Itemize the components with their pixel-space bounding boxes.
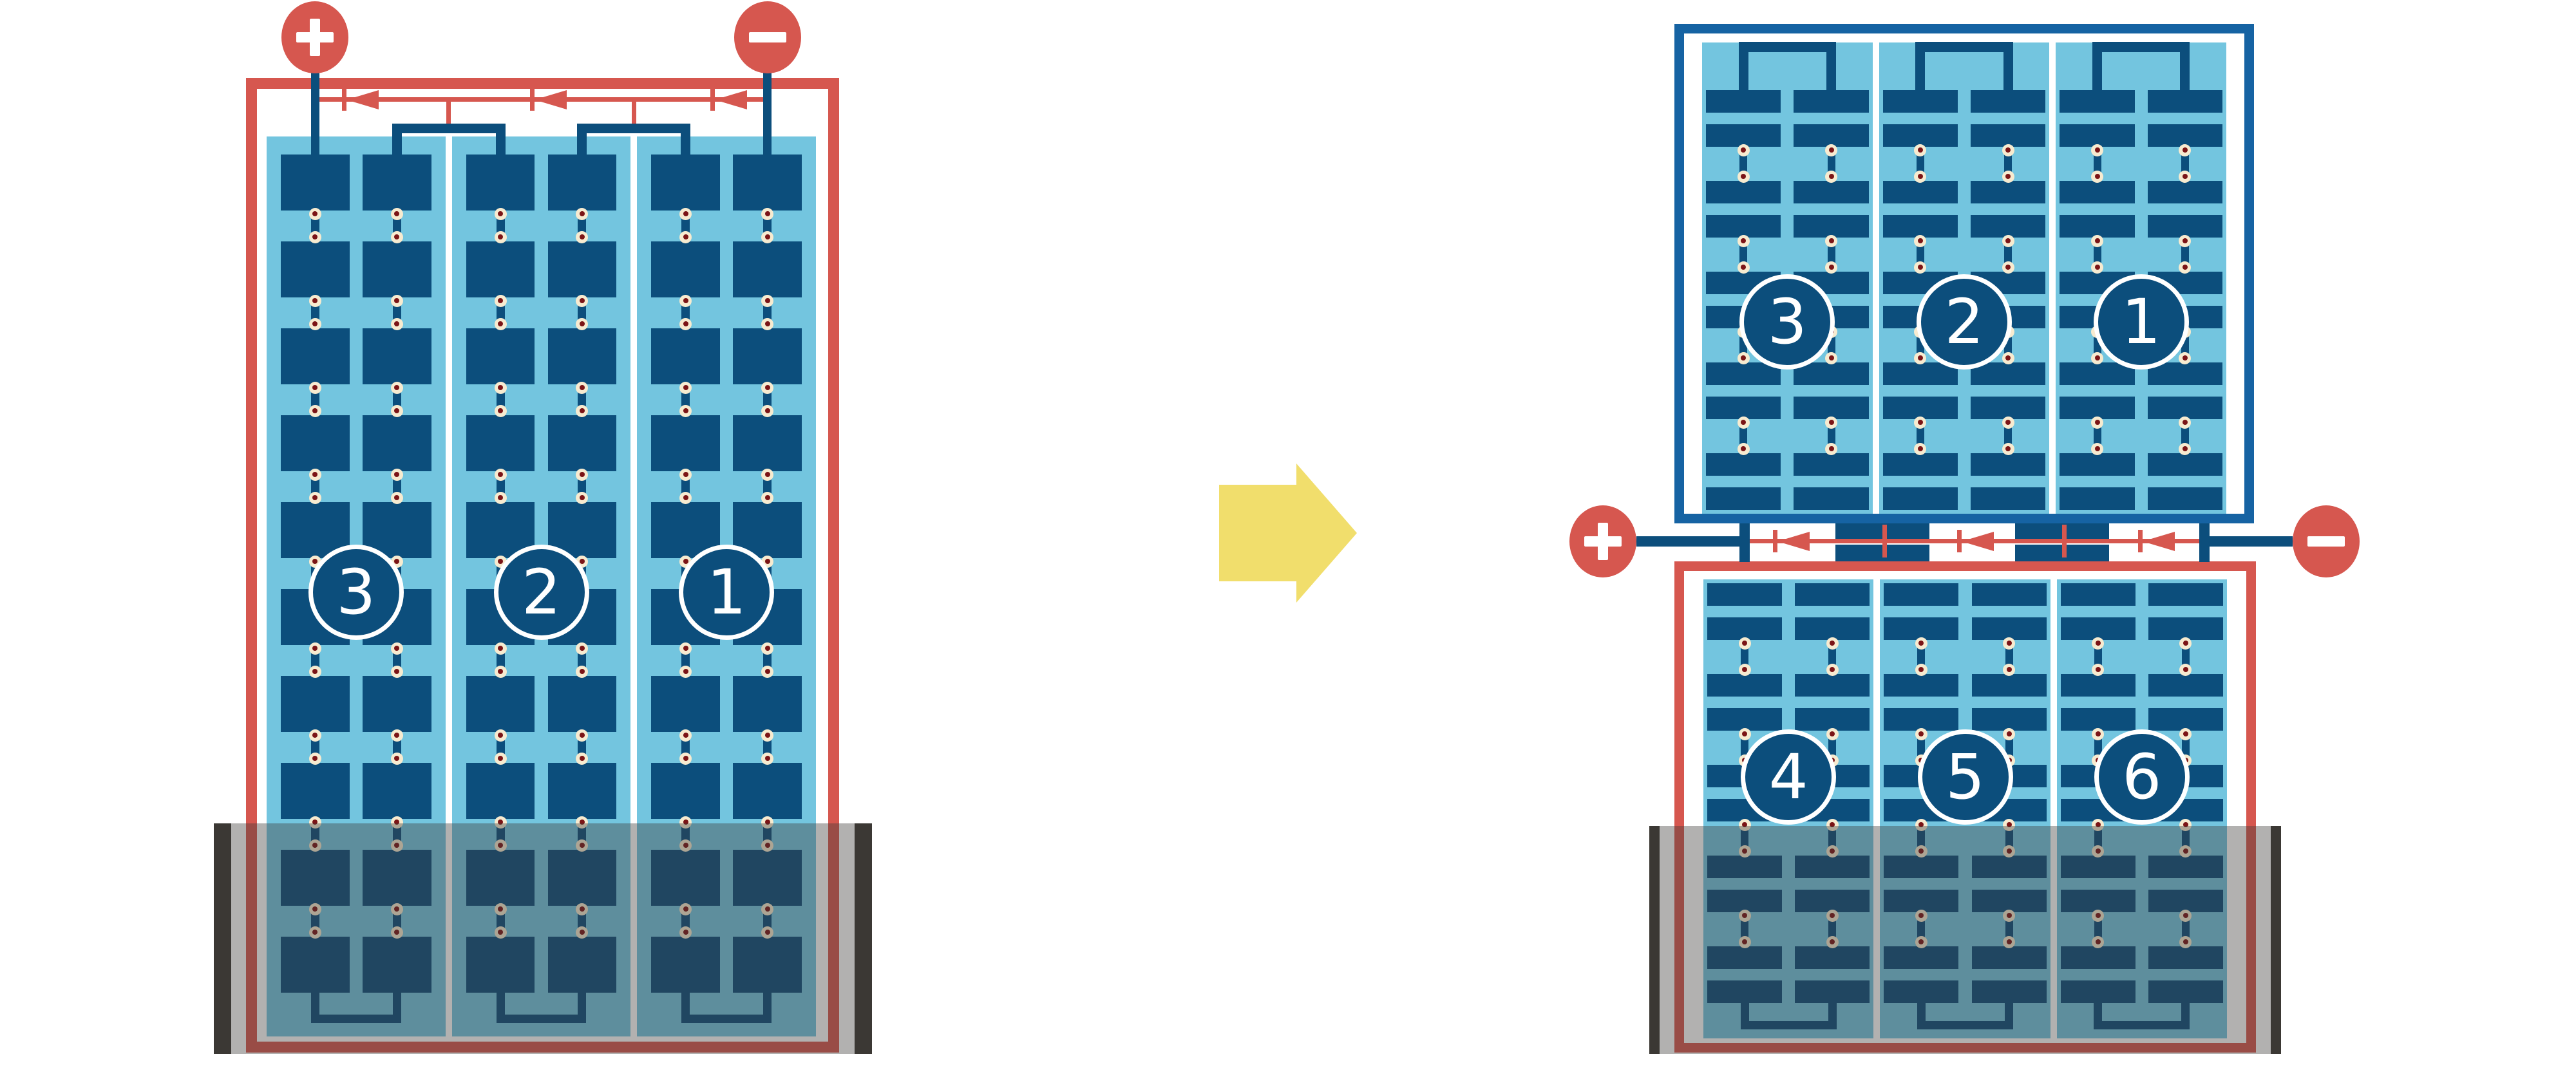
- solder-dot-core: [2007, 641, 2012, 646]
- solder-dot-core: [2005, 446, 2011, 451]
- solder-dot-core: [394, 408, 399, 413]
- solar-cell: [1972, 708, 2047, 731]
- terminal-stem: [1636, 536, 1741, 547]
- solder-dot: [2002, 261, 2014, 274]
- solder-dot: [576, 642, 588, 655]
- solder-dot-core: [312, 646, 317, 651]
- minus-icon: [2307, 536, 2345, 547]
- arrow-right-icon-head: [1296, 464, 1357, 603]
- solder-dot: [761, 318, 773, 330]
- solder-dot-core: [765, 298, 770, 303]
- solar-cell: [1884, 674, 1958, 697]
- solar-cell: [1794, 90, 1868, 113]
- solder-dot: [2091, 443, 2103, 455]
- solder-dot-core: [2095, 355, 2100, 361]
- solar-cell: [1971, 181, 2045, 203]
- solder-dot-core: [394, 234, 399, 239]
- solar-cell: [548, 328, 617, 384]
- solder-dot: [391, 753, 403, 765]
- solder-dot-core: [312, 321, 317, 326]
- solder-dot: [495, 318, 507, 330]
- solder-dot: [495, 642, 507, 655]
- solar-cell: [1706, 90, 1781, 113]
- solar-cell: [2148, 181, 2222, 203]
- solar-cell: [1706, 124, 1781, 147]
- solder-dot: [2092, 728, 2104, 740]
- solar-cell: [651, 676, 720, 732]
- string-u-connector-leg: [1826, 52, 1836, 90]
- solder-dot: [761, 642, 773, 655]
- solar-cell: [2148, 90, 2222, 113]
- string-link-bridge-bar: [577, 124, 690, 133]
- solder-dot-core: [2096, 641, 2101, 646]
- solder-dot-core: [765, 321, 770, 326]
- solder-dot-core: [683, 733, 688, 738]
- solder-dot-core: [2095, 420, 2100, 425]
- string-u-connector-leg: [2092, 52, 2102, 90]
- solar-cell: [2148, 124, 2222, 147]
- solder-dot-core: [498, 298, 503, 303]
- solar-cell: [1794, 215, 1868, 238]
- solder-dot: [679, 666, 692, 678]
- solder-dot-core: [312, 385, 317, 390]
- solar-cell: [363, 241, 431, 297]
- solar-cell: [2148, 453, 2222, 476]
- solder-dot: [1915, 664, 1927, 676]
- string-link-bridge-bar: [392, 124, 506, 133]
- solder-dot: [2179, 637, 2192, 650]
- bypass-diode-cathode-bar: [530, 88, 535, 111]
- solder-dot: [1914, 443, 1926, 455]
- solder-dot-core: [683, 211, 688, 216]
- solar-cell: [363, 155, 431, 211]
- shade-edge-bar: [214, 823, 231, 1054]
- solder-dot: [495, 382, 507, 394]
- string-u-connector-leg: [2003, 52, 2013, 90]
- solder-dot-core: [1829, 238, 1834, 243]
- solar-cell: [1795, 583, 1870, 606]
- solar-cell: [1883, 215, 1958, 238]
- solder-dot-core: [1918, 355, 1923, 361]
- solder-dot: [2091, 417, 2103, 429]
- solder-dot: [1738, 261, 1750, 274]
- solder-dot-core: [2096, 731, 2101, 736]
- solder-dot-core: [394, 756, 399, 761]
- solder-dot-core: [498, 321, 503, 326]
- solder-dot: [495, 231, 507, 243]
- solder-dot-core: [1742, 667, 1747, 672]
- solder-dot: [1738, 171, 1750, 183]
- solder-dot-core: [2183, 731, 2188, 736]
- solder-dot-core: [394, 472, 399, 477]
- string-marker: 1: [679, 545, 774, 640]
- solar-cell: [2148, 617, 2223, 640]
- solder-dot-core: [312, 298, 317, 303]
- solder-dot-core: [394, 298, 399, 303]
- solder-dot: [679, 753, 692, 765]
- solder-dot-core: [2005, 147, 2011, 153]
- solar-cell: [466, 155, 535, 211]
- minus-terminal: [2293, 505, 2360, 577]
- solder-dot-core: [1741, 420, 1746, 425]
- solder-dot-core: [498, 559, 503, 564]
- solder-dot-core: [580, 495, 585, 500]
- solder-dot-core: [683, 298, 688, 303]
- solar-cell: [2060, 124, 2134, 147]
- solder-dot: [2179, 728, 2192, 740]
- bypass-diode-cathode-bar: [1773, 530, 1777, 552]
- solder-dot-core: [1918, 265, 1923, 270]
- solder-dot-core: [683, 756, 688, 761]
- solder-dot-core: [1918, 420, 1923, 425]
- solder-dot-core: [312, 211, 317, 216]
- solder-dot-core: [765, 646, 770, 651]
- solder-dot-core: [1741, 147, 1746, 153]
- solar-cell: [1883, 181, 1958, 203]
- string-u-connector-leg: [1915, 52, 1925, 90]
- solder-dot-core: [2005, 265, 2011, 270]
- solar-cell: [1795, 708, 1870, 731]
- solder-dot: [495, 729, 507, 742]
- solder-dot: [679, 405, 692, 417]
- solar-cell: [651, 241, 720, 297]
- string-marker: 2: [494, 545, 589, 640]
- solar-cell: [1884, 583, 1958, 606]
- solder-dot: [1738, 235, 1750, 247]
- solar-cell: [548, 676, 617, 732]
- solar-cell: [651, 763, 720, 819]
- solder-dot-core: [312, 408, 317, 413]
- solder-dot-core: [1918, 731, 1924, 736]
- string-marker: 2: [1917, 274, 2012, 370]
- solar-cell: [1883, 124, 1958, 147]
- solder-dot-core: [683, 669, 688, 674]
- solder-dot-core: [683, 495, 688, 500]
- solder-dot-core: [1830, 731, 1835, 736]
- solder-dot: [2003, 728, 2015, 740]
- solder-dot-core: [2007, 731, 2012, 736]
- solder-dot-core: [765, 472, 770, 477]
- solder-dot: [2179, 443, 2191, 455]
- solar-cell: [1706, 397, 1781, 419]
- solder-dot-core: [765, 211, 770, 216]
- solar-cell: [281, 763, 350, 819]
- solder-dot-core: [312, 733, 317, 738]
- bypass-diode-icon: [715, 90, 747, 109]
- solder-dot: [576, 318, 588, 330]
- solder-dot-core: [498, 669, 503, 674]
- solder-dot-core: [765, 234, 770, 239]
- solder-dot-core: [683, 321, 688, 326]
- solder-dot: [2091, 144, 2103, 156]
- solder-dot-core: [2005, 420, 2011, 425]
- solder-dot-core: [394, 646, 399, 651]
- solar-cell: [1971, 215, 2045, 238]
- solar-cell: [2060, 397, 2134, 419]
- solder-dot: [576, 753, 588, 765]
- solder-dot-core: [394, 495, 399, 500]
- solder-dot-core: [580, 321, 585, 326]
- solder-dot-core: [2095, 238, 2100, 243]
- solder-dot-core: [2183, 238, 2188, 243]
- solar-cell: [733, 155, 802, 211]
- bypass-diode-cathode-bar: [2138, 530, 2143, 552]
- solder-dot: [1826, 637, 1839, 650]
- solar-shading-diagram: 321321456: [0, 0, 2576, 1068]
- solder-dot-core: [765, 669, 770, 674]
- solar-cell: [466, 763, 535, 819]
- solder-dot-core: [498, 234, 503, 239]
- solar-cell: [733, 415, 802, 471]
- solder-dot: [1914, 261, 1926, 274]
- solder-dot: [1825, 352, 1837, 364]
- solar-cell: [548, 241, 617, 297]
- solar-cell: [651, 328, 720, 384]
- solder-dot: [576, 729, 588, 742]
- solar-cell: [1884, 617, 1958, 640]
- solder-dot: [391, 666, 403, 678]
- solar-cell: [733, 763, 802, 819]
- solder-dot-core: [580, 408, 585, 413]
- solder-dot-core: [394, 321, 399, 326]
- junction-bus: [1739, 523, 1750, 562]
- string-link-bridge-leg: [496, 133, 506, 155]
- solder-dot: [1825, 144, 1837, 156]
- solder-dot: [761, 492, 773, 504]
- solder-dot-core: [312, 559, 317, 564]
- solder-dot-core: [1829, 147, 1834, 153]
- solder-dot: [309, 208, 321, 220]
- solar-cell: [1707, 674, 1782, 697]
- solder-dot-core: [2183, 147, 2188, 153]
- solder-dot: [2179, 144, 2191, 156]
- solder-dot: [1738, 352, 1750, 364]
- solder-dot: [1739, 728, 1751, 740]
- solder-dot-core: [312, 669, 317, 674]
- solder-dot: [679, 295, 692, 307]
- solder-dot: [761, 469, 773, 481]
- solder-dot-core: [580, 733, 585, 738]
- solder-dot: [391, 729, 403, 742]
- solder-dot-core: [2005, 238, 2011, 243]
- plus-icon-vertical: [1598, 523, 1608, 560]
- solder-dot: [761, 208, 773, 220]
- solar-cell: [466, 676, 535, 732]
- solder-dot: [2092, 637, 2104, 650]
- solder-dot: [2179, 261, 2191, 274]
- solar-cell: [2061, 674, 2136, 697]
- solder-dot: [495, 753, 507, 765]
- solder-dot: [391, 405, 403, 417]
- string-link-bridge-leg: [392, 133, 402, 155]
- solder-dot-core: [312, 495, 317, 500]
- shade-overlay: [1649, 826, 2281, 1054]
- solder-dot-core: [312, 472, 317, 477]
- string-marker: 3: [308, 545, 404, 640]
- solar-cell: [281, 328, 350, 384]
- solar-cell: [1972, 674, 2047, 697]
- solder-dot: [679, 382, 692, 394]
- solder-dot: [2002, 235, 2014, 247]
- solar-cell: [1884, 708, 1958, 731]
- solder-dot: [309, 382, 321, 394]
- solder-dot-core: [765, 756, 770, 761]
- solder-dot: [679, 642, 692, 655]
- solder-dot: [761, 231, 773, 243]
- solder-dot-core: [765, 408, 770, 413]
- string-marker: 6: [2094, 729, 2190, 825]
- solder-dot-core: [1741, 446, 1746, 451]
- solder-dot-core: [2183, 667, 2188, 672]
- solder-dot-core: [765, 495, 770, 500]
- solder-dot: [309, 666, 321, 678]
- solder-dot-core: [498, 646, 503, 651]
- solder-dot: [679, 208, 692, 220]
- solder-dot-core: [2183, 420, 2188, 425]
- solder-dot-core: [394, 669, 399, 674]
- solar-cell: [1795, 674, 1870, 697]
- shade-edge-bar: [1649, 826, 1660, 1054]
- solder-dot-core: [580, 298, 585, 303]
- solder-dot: [2003, 637, 2015, 650]
- solar-cell: [1707, 708, 1782, 731]
- bypass-diode-icon: [2143, 532, 2175, 551]
- solder-dot: [2179, 171, 2191, 183]
- solder-dot-core: [394, 211, 399, 216]
- solar-cell: [466, 328, 535, 384]
- solder-dot-core: [1918, 641, 1924, 646]
- solder-dot-core: [683, 234, 688, 239]
- plus-terminal: [281, 1, 348, 73]
- solder-dot: [2002, 417, 2014, 429]
- solar-cell: [548, 155, 617, 211]
- minus-icon: [749, 32, 786, 42]
- solder-dot-core: [2183, 446, 2188, 451]
- solar-cell: [733, 328, 802, 384]
- solder-dot-core: [1918, 238, 1923, 243]
- solar-cell: [281, 676, 350, 732]
- solder-dot: [576, 208, 588, 220]
- bypass-diode-cathode-bar: [342, 88, 346, 111]
- solder-dot-core: [2095, 446, 2100, 451]
- solar-cell: [363, 676, 431, 732]
- solder-dot-core: [498, 495, 503, 500]
- solar-cell: [2061, 617, 2136, 640]
- solar-cell: [2148, 397, 2222, 419]
- solder-dot-core: [765, 559, 770, 564]
- solar-cell: [1706, 181, 1781, 203]
- solder-dot: [1914, 144, 1926, 156]
- solder-dot: [1825, 417, 1837, 429]
- solder-dot-core: [2183, 265, 2188, 270]
- solder-dot: [495, 208, 507, 220]
- string-marker: 4: [1741, 729, 1836, 825]
- solar-cell: [1971, 124, 2045, 147]
- solder-dot-core: [2005, 355, 2011, 361]
- solder-dot-core: [580, 472, 585, 477]
- solder-dot: [576, 469, 588, 481]
- solar-cell: [2060, 90, 2134, 113]
- solder-dot-core: [580, 559, 585, 564]
- solder-dot: [761, 295, 773, 307]
- solder-dot: [2179, 235, 2191, 247]
- solder-dot-core: [580, 234, 585, 239]
- solar-cell: [548, 415, 617, 471]
- solder-dot: [679, 729, 692, 742]
- solar-cell: [1971, 453, 2045, 476]
- solder-dot-core: [498, 408, 503, 413]
- solder-dot: [576, 382, 588, 394]
- arrow-right-icon-body: [1219, 485, 1296, 581]
- solder-dot-core: [2183, 174, 2188, 179]
- solder-dot: [761, 405, 773, 417]
- solder-dot: [761, 753, 773, 765]
- solder-dot: [2179, 664, 2192, 676]
- solder-dot: [761, 729, 773, 742]
- solar-cell: [2060, 215, 2134, 238]
- solder-dot: [495, 295, 507, 307]
- solder-dot: [391, 469, 403, 481]
- diode-junction-tap: [632, 102, 636, 124]
- solder-dot-core: [394, 559, 399, 564]
- solder-dot-core: [394, 733, 399, 738]
- solar-cell: [2060, 453, 2134, 476]
- solder-dot-core: [1829, 265, 1834, 270]
- solder-dot: [679, 231, 692, 243]
- solder-dot: [309, 642, 321, 655]
- string-link-bridge-leg: [577, 133, 587, 155]
- diode-junction-tap: [446, 102, 451, 124]
- solar-cell: [1972, 583, 2047, 606]
- solder-dot-core: [498, 756, 503, 761]
- solar-cell: [733, 241, 802, 297]
- minus-terminal: [734, 1, 801, 73]
- solar-cell: [2061, 583, 2136, 606]
- solder-dot: [495, 666, 507, 678]
- solar-cell: [733, 676, 802, 732]
- solder-dot-core: [2095, 147, 2100, 153]
- plus-icon-vertical: [310, 19, 320, 56]
- solar-cell: [2148, 487, 2222, 510]
- solar-cell: [363, 763, 431, 819]
- solder-dot: [391, 318, 403, 330]
- solder-dot: [576, 231, 588, 243]
- solder-dot: [309, 231, 321, 243]
- solder-dot-core: [1830, 641, 1835, 646]
- plus-terminal: [1569, 505, 1636, 577]
- solder-dot: [2002, 443, 2014, 455]
- solar-cell: [1795, 617, 1870, 640]
- solder-dot: [576, 492, 588, 504]
- bypass-diode-cathode-bar: [1957, 530, 1962, 552]
- solder-dot-core: [1829, 355, 1834, 361]
- solder-dot: [1826, 728, 1839, 740]
- solder-dot: [1739, 664, 1751, 676]
- solar-cell: [1794, 181, 1868, 203]
- solar-cell: [1883, 397, 1958, 419]
- solder-dot-core: [2096, 667, 2101, 672]
- solder-dot-core: [2007, 667, 2012, 672]
- solder-dot-core: [498, 211, 503, 216]
- solder-dot: [1915, 728, 1927, 740]
- solder-dot: [2091, 171, 2103, 183]
- diode-junction-tap: [2062, 525, 2067, 557]
- solder-dot-core: [2005, 174, 2011, 179]
- solar-cell: [1883, 90, 1958, 113]
- solder-dot-core: [683, 646, 688, 651]
- solder-dot-core: [394, 385, 399, 390]
- solder-dot-core: [1918, 174, 1923, 179]
